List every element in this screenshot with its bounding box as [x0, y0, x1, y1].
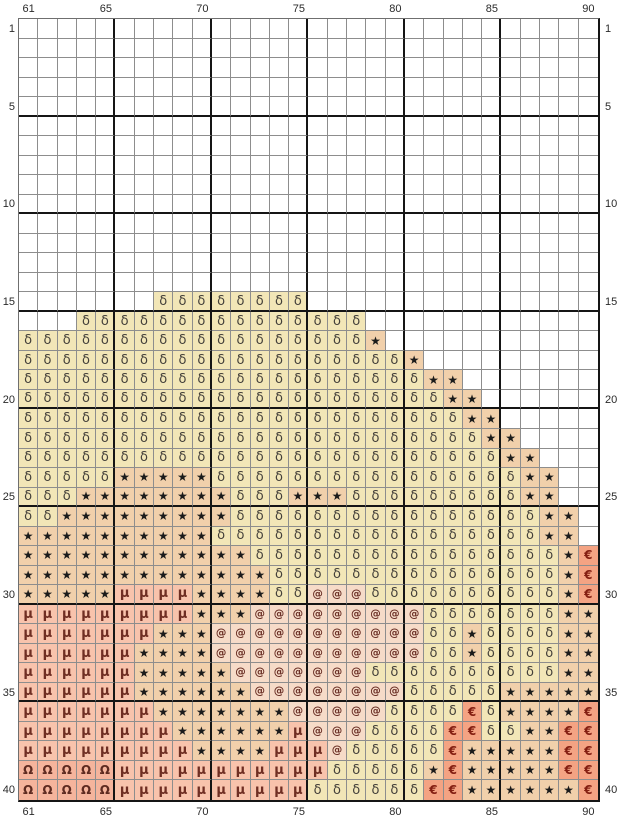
grid-cell-star-stitch: ★	[173, 644, 192, 664]
grid-cell-at-stitch: @	[270, 624, 289, 644]
grid-cell-delta-stitch: δ	[212, 409, 231, 429]
grid-cell-delta-stitch: δ	[386, 527, 405, 547]
grid-cell-delta-stitch: δ	[347, 429, 366, 449]
grid-cell-star-stitch: ★	[579, 605, 598, 625]
grid-cell-mu-stitch: μ	[19, 644, 38, 664]
grid-cell-delta-stitch: δ	[212, 429, 231, 449]
grid-cell-delta-stitch: δ	[521, 644, 540, 664]
grid-cell-delta-stitch: δ	[231, 507, 250, 527]
grid-cell-empty	[231, 39, 250, 59]
grid-cell-delta-stitch: δ	[424, 468, 443, 488]
grid-cell-delta-stitch: δ	[212, 351, 231, 371]
grid-cell-empty	[366, 156, 385, 176]
grid-cell-delta-stitch: δ	[270, 390, 289, 410]
grid-cell-delta-stitch: δ	[289, 390, 308, 410]
grid-cell-mu-stitch: μ	[58, 624, 77, 644]
grid-cell-star-stitch: ★	[193, 624, 212, 644]
grid-cell-empty	[482, 370, 501, 390]
grid-cell-mu-stitch: μ	[154, 761, 173, 781]
grid-cell-mu-stitch: μ	[38, 722, 57, 742]
grid-cell-empty	[405, 136, 424, 156]
grid-cell-delta-stitch: δ	[308, 370, 327, 390]
grid-cell-mu-stitch: μ	[38, 741, 57, 761]
grid-cell-empty	[501, 156, 520, 176]
top-axis-label: 65	[100, 2, 112, 16]
grid-cell-omega-stitch: Ω	[96, 761, 115, 781]
grid-cell-mu-stitch: μ	[96, 605, 115, 625]
grid-cell-delta-stitch: δ	[463, 429, 482, 449]
grid-cell-delta-stitch: δ	[366, 468, 385, 488]
grid-cell-delta-stitch: δ	[270, 527, 289, 547]
grid-cell-empty	[559, 488, 578, 508]
grid-cell-empty	[463, 253, 482, 273]
grid-cell-empty	[540, 409, 559, 429]
grid-cell-empty	[58, 214, 77, 234]
grid-cell-star-stitch: ★	[501, 683, 520, 703]
grid-cell-omega-stitch: Ω	[38, 761, 57, 781]
grid-cell-empty	[463, 58, 482, 78]
grid-cell-empty	[424, 312, 443, 332]
grid-cell-empty	[193, 58, 212, 78]
grid-cell-delta-stitch: δ	[347, 488, 366, 508]
grid-cell-empty	[193, 156, 212, 176]
grid-cell-star-stitch: ★	[154, 527, 173, 547]
grid-cell-delta-stitch: δ	[251, 351, 270, 371]
grid-cell-delta-stitch: δ	[482, 624, 501, 644]
grid-cell-star-stitch: ★	[96, 566, 115, 586]
grid-cell-star-stitch: ★	[251, 585, 270, 605]
grid-cell-star-stitch: ★	[212, 546, 231, 566]
grid-cell-star-stitch: ★	[58, 507, 77, 527]
grid-cell-empty	[289, 58, 308, 78]
grid-cell-at-stitch: @	[347, 683, 366, 703]
grid-cell-delta-stitch: δ	[366, 722, 385, 742]
grid-cell-empty	[463, 214, 482, 234]
grid-cell-star-stitch: ★	[135, 566, 154, 586]
grid-cell-empty	[193, 273, 212, 293]
grid-cell-empty	[579, 234, 598, 254]
grid-cell-delta-stitch: δ	[482, 702, 501, 722]
grid-cell-star-stitch: ★	[173, 507, 192, 527]
grid-cell-star-stitch: ★	[251, 741, 270, 761]
grid-cell-delta-stitch: δ	[540, 605, 559, 625]
grid-cell-empty	[270, 253, 289, 273]
grid-cell-empty	[579, 409, 598, 429]
grid-cell-omega-stitch: Ω	[96, 780, 115, 800]
grid-cell-empty	[173, 39, 192, 59]
grid-cell-delta-stitch: δ	[366, 449, 385, 469]
grid-cell-at-stitch: @	[386, 644, 405, 664]
grid-cell-empty	[501, 409, 520, 429]
grid-cell-empty	[193, 195, 212, 215]
grid-cell-empty	[58, 312, 77, 332]
grid-cell-delta-stitch: δ	[424, 644, 443, 664]
grid-cell-mu-stitch: μ	[58, 605, 77, 625]
grid-cell-delta-stitch: δ	[328, 780, 347, 800]
grid-cell-star-stitch: ★	[559, 507, 578, 527]
grid-cell-empty	[540, 58, 559, 78]
grid-cell-empty	[77, 292, 96, 312]
grid-cell-empty	[463, 136, 482, 156]
grid-cell-delta-stitch: δ	[347, 741, 366, 761]
grid-cell-mu-stitch: μ	[58, 644, 77, 664]
grid-cell-delta-stitch: δ	[289, 546, 308, 566]
grid-cell-delta-stitch: δ	[405, 449, 424, 469]
grid-cell-star-stitch: ★	[501, 429, 520, 449]
right-axis-label: 30	[605, 587, 629, 603]
grid-cell-omega-stitch: Ω	[58, 761, 77, 781]
grid-cell-delta-stitch: δ	[521, 663, 540, 683]
grid-cell-at-stitch: @	[328, 741, 347, 761]
grid-cell-mu-stitch: μ	[77, 722, 96, 742]
grid-cell-star-stitch: ★	[135, 468, 154, 488]
grid-cell-empty	[463, 195, 482, 215]
grid-cell-empty	[135, 253, 154, 273]
left-axis-label: 15	[0, 294, 15, 310]
top-axis-label: 80	[389, 2, 401, 16]
grid-cell-empty	[38, 39, 57, 59]
grid-cell-empty	[212, 175, 231, 195]
grid-cell-delta-stitch: δ	[270, 488, 289, 508]
grid-cell-empty	[328, 117, 347, 137]
grid-cell-delta-stitch: δ	[386, 702, 405, 722]
grid-cell-mu-stitch: μ	[135, 585, 154, 605]
grid-cell-at-stitch: @	[328, 663, 347, 683]
grid-cell-mu-stitch: μ	[38, 683, 57, 703]
grid-cell-empty	[154, 78, 173, 98]
grid-cell-star-stitch: ★	[559, 605, 578, 625]
grid-cell-at-stitch: @	[289, 663, 308, 683]
right-axis-label: 35	[605, 685, 629, 701]
grid-cell-euro-stitch: €	[444, 722, 463, 742]
grid-cell-star-stitch: ★	[173, 566, 192, 586]
grid-cell-delta-stitch: δ	[270, 546, 289, 566]
grid-cell-euro-stitch: €	[559, 741, 578, 761]
grid-cell-empty	[19, 292, 38, 312]
bottom-axis-label: 65	[100, 805, 112, 819]
grid-cell-delta-stitch: δ	[386, 390, 405, 410]
grid-cell-star-stitch: ★	[115, 527, 134, 547]
grid-cell-empty	[328, 253, 347, 273]
grid-cell-empty	[96, 97, 115, 117]
grid-cell-euro-stitch: €	[463, 722, 482, 742]
grid-cell-mu-stitch: μ	[58, 702, 77, 722]
grid-cell-star-stitch: ★	[193, 585, 212, 605]
grid-cell-empty	[540, 253, 559, 273]
grid-cell-at-stitch: @	[405, 605, 424, 625]
grid-cell-empty	[289, 253, 308, 273]
grid-cell-delta-stitch: δ	[347, 370, 366, 390]
grid-cell-empty	[386, 292, 405, 312]
grid-cell-empty	[482, 58, 501, 78]
grid-cell-delta-stitch: δ	[405, 488, 424, 508]
grid-cell-star-stitch: ★	[270, 722, 289, 742]
right-axis-label: 20	[605, 392, 629, 408]
grid-cell-at-stitch: @	[212, 624, 231, 644]
grid-cell-delta-stitch: δ	[501, 644, 520, 664]
grid-cell-empty	[231, 78, 250, 98]
grid-cell-empty	[405, 58, 424, 78]
grid-cell-mu-stitch: μ	[77, 741, 96, 761]
grid-cell-empty	[444, 136, 463, 156]
grid-cell-empty	[173, 175, 192, 195]
grid-cell-empty	[559, 253, 578, 273]
top-axis-label: 85	[486, 2, 498, 16]
grid-cell-star-stitch: ★	[251, 722, 270, 742]
grid-cell-delta-stitch: δ	[424, 566, 443, 586]
grid-cell-delta-stitch: δ	[251, 449, 270, 469]
grid-cell-empty	[328, 58, 347, 78]
grid-cell-delta-stitch: δ	[540, 644, 559, 664]
grid-cell-empty	[579, 449, 598, 469]
grid-cell-empty	[38, 273, 57, 293]
grid-cell-mu-stitch: μ	[96, 741, 115, 761]
grid-cell-delta-stitch: δ	[212, 468, 231, 488]
grid-cell-delta-stitch: δ	[58, 468, 77, 488]
grid-cell-star-stitch: ★	[193, 527, 212, 547]
grid-cell-delta-stitch: δ	[501, 546, 520, 566]
grid-cell-empty	[386, 156, 405, 176]
grid-cell-delta-stitch: δ	[77, 468, 96, 488]
grid-cell-empty	[115, 175, 134, 195]
grid-cell-empty	[405, 39, 424, 59]
grid-cell-star-stitch: ★	[19, 566, 38, 586]
grid-cell-empty	[366, 273, 385, 293]
grid-cell-delta-stitch: δ	[38, 351, 57, 371]
grid-cell-mu-stitch: μ	[135, 761, 154, 781]
grid-cell-empty	[251, 195, 270, 215]
grid-cell-delta-stitch: δ	[193, 292, 212, 312]
grid-cell-delta-stitch: δ	[231, 390, 250, 410]
grid-cell-empty	[77, 195, 96, 215]
grid-cell-empty	[579, 175, 598, 195]
grid-cell-empty	[559, 390, 578, 410]
grid-cell-star-stitch: ★	[251, 702, 270, 722]
grid-cell-empty	[366, 58, 385, 78]
grid-cell-at-stitch: @	[308, 624, 327, 644]
grid-cell-empty	[96, 58, 115, 78]
grid-cell-star-stitch: ★	[212, 741, 231, 761]
grid-cell-at-stitch: @	[347, 722, 366, 742]
grid-cell-empty	[154, 234, 173, 254]
grid-cell-empty	[193, 214, 212, 234]
left-axis-label: 30	[0, 587, 15, 603]
grid-cell-empty	[231, 136, 250, 156]
grid-cell-empty	[347, 253, 366, 273]
grid-cell-empty	[58, 273, 77, 293]
grid-cell-empty	[308, 78, 327, 98]
grid-cell-empty	[231, 19, 250, 39]
grid-cell-empty	[579, 312, 598, 332]
grid-cell-star-stitch: ★	[482, 780, 501, 800]
grid-cell-mu-stitch: μ	[115, 761, 134, 781]
grid-cell-euro-stitch: €	[444, 780, 463, 800]
grid-cell-empty	[19, 253, 38, 273]
grid-cell-mu-stitch: μ	[115, 722, 134, 742]
grid-cell-empty	[77, 19, 96, 39]
grid-cell-empty	[38, 97, 57, 117]
grid-cell-omega-stitch: Ω	[38, 780, 57, 800]
grid-cell-empty	[482, 39, 501, 59]
grid-cell-empty	[501, 78, 520, 98]
grid-cell-empty	[193, 78, 212, 98]
grid-cell-delta-stitch: δ	[463, 605, 482, 625]
grid-cell-empty	[405, 331, 424, 351]
grid-cell-empty	[559, 429, 578, 449]
grid-cell-empty	[251, 253, 270, 273]
grid-cell-star-stitch: ★	[521, 449, 540, 469]
grid-cell-delta-stitch: δ	[58, 370, 77, 390]
grid-cell-delta-stitch: δ	[19, 390, 38, 410]
grid-cell-at-stitch: @	[366, 644, 385, 664]
grid-cell-delta-stitch: δ	[424, 683, 443, 703]
grid-cell-delta-stitch: δ	[405, 409, 424, 429]
grid-cell-mu-stitch: μ	[38, 644, 57, 664]
grid-cell-delta-stitch: δ	[386, 429, 405, 449]
grid-cell-empty	[154, 136, 173, 156]
grid-cell-delta-stitch: δ	[289, 331, 308, 351]
grid-cell-delta-stitch: δ	[308, 331, 327, 351]
grid-cell-mu-stitch: μ	[96, 644, 115, 664]
grid-cell-empty	[58, 156, 77, 176]
grid-cell-delta-stitch: δ	[444, 702, 463, 722]
grid-cell-delta-stitch: δ	[38, 507, 57, 527]
grid-cell-at-stitch: @	[251, 683, 270, 703]
grid-cell-empty	[366, 312, 385, 332]
grid-cell-delta-stitch: δ	[308, 566, 327, 586]
grid-cell-empty	[251, 136, 270, 156]
grid-cell-empty	[154, 253, 173, 273]
grid-cell-empty	[463, 351, 482, 371]
grid-cell-empty	[38, 195, 57, 215]
grid-cell-delta-stitch: δ	[405, 507, 424, 527]
grid-cell-delta-stitch: δ	[405, 468, 424, 488]
grid-cell-star-stitch: ★	[96, 585, 115, 605]
grid-cell-delta-stitch: δ	[135, 312, 154, 332]
grid-cell-empty	[270, 175, 289, 195]
grid-cell-empty	[559, 234, 578, 254]
grid-cell-star-stitch: ★	[154, 468, 173, 488]
grid-cell-delta-stitch: δ	[289, 292, 308, 312]
grid-cell-delta-stitch: δ	[405, 370, 424, 390]
grid-cell-empty	[328, 136, 347, 156]
grid-cell-empty	[96, 78, 115, 98]
grid-cell-empty	[579, 78, 598, 98]
grid-cell-delta-stitch: δ	[96, 331, 115, 351]
left-axis-label: 5	[0, 99, 15, 115]
grid-cell-star-stitch: ★	[135, 488, 154, 508]
grid-cell-empty	[270, 39, 289, 59]
grid-cell-empty	[328, 19, 347, 39]
grid-cell-at-stitch: @	[289, 644, 308, 664]
grid-cell-star-stitch: ★	[540, 507, 559, 527]
grid-cell-star-stitch: ★	[482, 741, 501, 761]
grid-cell-delta-stitch: δ	[482, 527, 501, 547]
grid-cell-delta-stitch: δ	[424, 488, 443, 508]
grid-cell-empty	[154, 97, 173, 117]
grid-cell-delta-stitch: δ	[405, 585, 424, 605]
grid-cell-empty	[19, 117, 38, 137]
grid-cell-mu-stitch: μ	[231, 761, 250, 781]
grid-cell-empty	[501, 253, 520, 273]
grid-cell-delta-stitch: δ	[289, 585, 308, 605]
grid-cell-delta-stitch: δ	[96, 449, 115, 469]
grid-cell-empty	[135, 292, 154, 312]
grid-cell-star-stitch: ★	[482, 409, 501, 429]
grid-cell-delta-stitch: δ	[173, 390, 192, 410]
grid-cell-delta-stitch: δ	[19, 507, 38, 527]
grid-cell-at-stitch: @	[347, 644, 366, 664]
grid-cell-delta-stitch: δ	[251, 409, 270, 429]
grid-cell-star-stitch: ★	[521, 702, 540, 722]
grid-cell-empty	[386, 58, 405, 78]
grid-cell-empty	[115, 78, 134, 98]
grid-cell-empty	[173, 214, 192, 234]
grid-cell-empty	[501, 39, 520, 59]
grid-cell-delta-stitch: δ	[135, 390, 154, 410]
grid-cell-empty	[77, 175, 96, 195]
grid-cell-empty	[173, 78, 192, 98]
grid-cell-delta-stitch: δ	[251, 507, 270, 527]
grid-cell-empty	[38, 175, 57, 195]
grid-cell-empty	[212, 58, 231, 78]
grid-cell-star-stitch: ★	[212, 722, 231, 742]
grid-cell-empty	[96, 234, 115, 254]
grid-cell-delta-stitch: δ	[501, 663, 520, 683]
grid-cell-delta-stitch: δ	[19, 449, 38, 469]
bottom-axis-label: 61	[23, 805, 35, 819]
grid-cell-star-stitch: ★	[231, 546, 250, 566]
grid-cell-empty	[58, 78, 77, 98]
grid-cell-empty	[386, 273, 405, 293]
grid-cell-empty	[386, 136, 405, 156]
grid-cell-delta-stitch: δ	[173, 331, 192, 351]
grid-cell-empty	[540, 351, 559, 371]
grid-cell-star-stitch: ★	[212, 702, 231, 722]
grid-cell-delta-stitch: δ	[58, 449, 77, 469]
grid-cell-empty	[347, 214, 366, 234]
grid-cell-delta-stitch: δ	[289, 429, 308, 449]
grid-cell-empty	[366, 214, 385, 234]
grid-cell-delta-stitch: δ	[540, 546, 559, 566]
grid-cell-empty	[540, 195, 559, 215]
grid-cell-star-stitch: ★	[540, 780, 559, 800]
grid-cell-empty	[463, 234, 482, 254]
grid-cell-delta-stitch: δ	[521, 605, 540, 625]
grid-cell-delta-stitch: δ	[386, 546, 405, 566]
grid-cell-delta-stitch: δ	[328, 331, 347, 351]
grid-cell-empty	[366, 78, 385, 98]
grid-cell-empty	[212, 136, 231, 156]
grid-cell-empty	[251, 78, 270, 98]
grid-cell-empty	[38, 58, 57, 78]
grid-cell-empty	[366, 292, 385, 312]
grid-cell-empty	[579, 507, 598, 527]
grid-cell-delta-stitch: δ	[19, 351, 38, 371]
grid-cell-delta-stitch: δ	[77, 429, 96, 449]
grid-cell-delta-stitch: δ	[308, 507, 327, 527]
grid-cell-euro-stitch: €	[579, 761, 598, 781]
grid-cell-at-stitch: @	[212, 644, 231, 664]
grid-cell-mu-stitch: μ	[289, 761, 308, 781]
grid-cell-delta-stitch: δ	[19, 409, 38, 429]
grid-cell-star-stitch: ★	[96, 488, 115, 508]
grid-cell-delta-stitch: δ	[386, 351, 405, 371]
grid-cell-empty	[540, 331, 559, 351]
grid-cell-empty	[521, 312, 540, 332]
grid-cell-empty	[386, 97, 405, 117]
grid-cell-empty	[501, 214, 520, 234]
